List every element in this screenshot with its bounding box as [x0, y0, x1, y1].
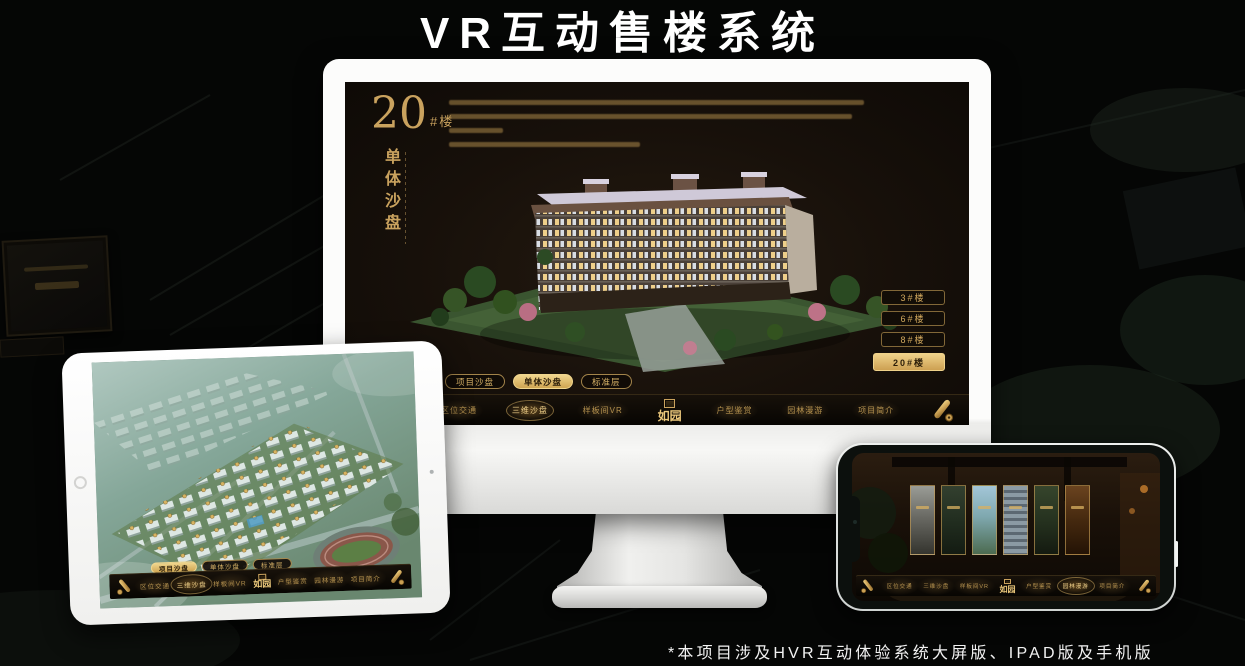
poster-canvas: 20 #楼 单体沙盘 — [0, 0, 1245, 666]
gallery-item-1[interactable] — [910, 485, 935, 555]
background-award-plaque-small — [0, 336, 64, 357]
menu-item-location[interactable]: 区位交通 — [441, 405, 477, 416]
floor-button-3[interactable]: 3#楼 — [881, 290, 945, 305]
tab-single-sandtable[interactable]: 单体沙盘 — [513, 374, 573, 389]
floor-button-8[interactable]: 8#楼 — [881, 332, 945, 347]
menu-item-floorplans[interactable]: 户型鉴赏 — [716, 405, 752, 416]
menu-logo[interactable]: 如园 — [1000, 579, 1016, 593]
seal-icon — [664, 399, 675, 408]
gallery-item-5[interactable] — [1034, 485, 1059, 555]
gallery-item-2[interactable] — [941, 485, 966, 555]
tab-standard-floor[interactable]: 标准层 — [581, 374, 632, 389]
scroll-icon[interactable] — [387, 568, 406, 587]
background-award-plaque — [2, 235, 113, 336]
phone-menu-bar: 区位交通 三维沙盘 样板间VR 如园 户型鉴赏 园林漫游 项目简介 — [856, 575, 1156, 596]
phone-camera — [853, 520, 857, 524]
menu-item-garden-tour[interactable]: 园林漫游 — [787, 405, 823, 416]
menu-item-floorplans[interactable]: 户型鉴赏 — [1026, 582, 1052, 590]
building-headline: 20 #楼 — [371, 92, 454, 136]
menu-item-3d-sandtable[interactable]: 三维沙盘 — [923, 582, 949, 590]
scroll-icon[interactable] — [1136, 578, 1152, 594]
floor-selector: 3#楼 6#楼 8#楼 20#楼 — [873, 290, 945, 371]
scroll-icon[interactable] — [115, 577, 134, 596]
description-paragraph-placeholder — [449, 100, 864, 156]
tablet-home-button[interactable] — [74, 476, 87, 489]
monitor-stand-base — [552, 586, 767, 608]
phone-screen: 区位交通 三维沙盘 样板间VR 如园 户型鉴赏 园林漫游 项目简介 — [852, 453, 1160, 601]
tab-project-sandtable[interactable]: 项目沙盘 — [445, 374, 505, 389]
phone-notch — [851, 496, 860, 562]
gallery-item-4[interactable] — [1003, 485, 1028, 555]
menu-logo-text: 如园 — [658, 410, 682, 422]
menu-item-project-intro[interactable]: 项目简介 — [351, 573, 381, 584]
menu-item-location[interactable]: 区位交通 — [887, 582, 913, 590]
tablet-screen: 项目沙盘 单体沙盘 标准层 区位交通 三维沙盘 样板间VR 如园 — [92, 351, 422, 608]
menu-item-showroom-vr[interactable]: 样板间VR — [583, 405, 623, 416]
menu-logo-text: 如园 — [253, 581, 271, 591]
menu-item-showroom-vr[interactable]: 样板间VR — [213, 577, 247, 588]
building-number: 20 — [371, 92, 427, 136]
menu-logo[interactable]: 如园 — [253, 574, 272, 591]
tablet-device: 项目沙盘 单体沙盘 标准层 区位交通 三维沙盘 样板间VR 如园 — [61, 340, 450, 625]
tablet-camera — [430, 470, 434, 474]
menu-item-project-intro[interactable]: 项目简介 — [858, 405, 894, 416]
menu-logo-text: 如园 — [1000, 585, 1016, 593]
building-model-illustration — [385, 162, 925, 377]
page-title: VR互动售楼系统 — [0, 0, 1245, 57]
monitor-sub-tabs: 项目沙盘 单体沙盘 标准层 — [445, 374, 632, 389]
floor-button-6[interactable]: 6#楼 — [881, 311, 945, 326]
menu-item-showroom-vr[interactable]: 样板间VR — [960, 582, 989, 590]
footnote-text: *本项目涉及HVR互动体验系统大屏版、IPAD版及手机版 — [668, 639, 1154, 663]
menu-item-location[interactable]: 区位交通 — [140, 580, 170, 591]
gallery-item-6[interactable] — [1065, 485, 1090, 555]
scroll-icon[interactable] — [860, 578, 876, 594]
menu-item-project-intro[interactable]: 项目简介 — [1099, 582, 1125, 590]
phone-device: 区位交通 三维沙盘 样板间VR 如园 户型鉴赏 园林漫游 项目简介 — [836, 443, 1176, 611]
floor-button-20[interactable]: 20#楼 — [873, 353, 945, 371]
scene-gallery — [910, 485, 1090, 555]
menu-item-garden-tour[interactable]: 园林漫游 — [314, 574, 344, 585]
phone-side-button[interactable] — [1175, 541, 1178, 567]
menu-item-3d-sandtable[interactable]: 三维沙盘 — [176, 579, 206, 590]
menu-item-3d-sandtable[interactable]: 三维沙盘 — [512, 405, 548, 416]
phone-body: 区位交通 三维沙盘 样板间VR 如园 户型鉴赏 园林漫游 项目简介 — [838, 445, 1174, 609]
scroll-icon[interactable] — [929, 397, 955, 423]
gallery-item-3[interactable] — [972, 485, 997, 555]
menu-item-garden-tour[interactable]: 园林漫游 — [1063, 582, 1089, 590]
menu-item-floorplans[interactable]: 户型鉴赏 — [278, 575, 308, 586]
menu-logo[interactable]: 如园 — [658, 399, 682, 422]
